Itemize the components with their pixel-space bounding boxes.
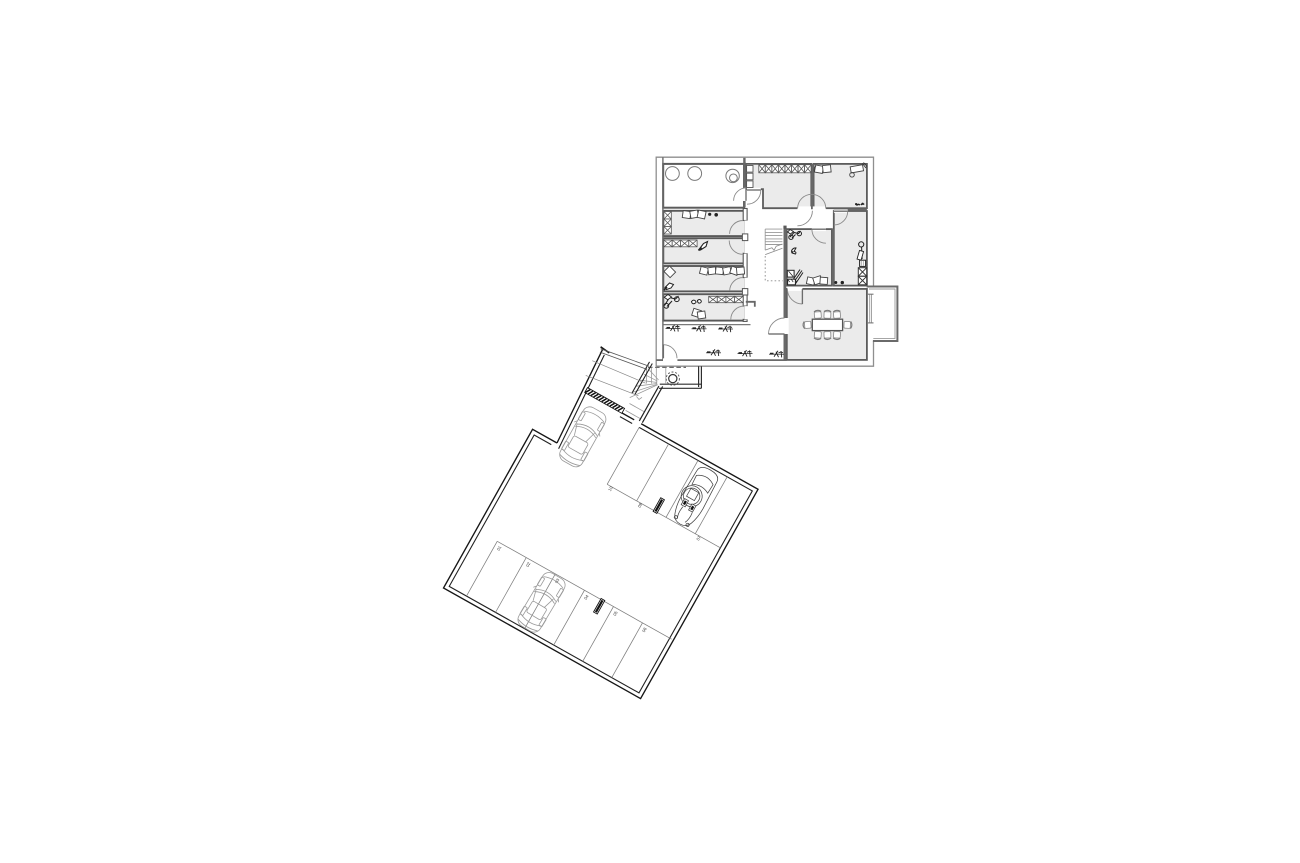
svg-text:04: 04: [583, 593, 590, 600]
svg-text:05: 05: [612, 610, 619, 617]
svg-text:06: 06: [641, 626, 648, 633]
svg-text:01: 01: [496, 544, 503, 551]
svg-text:02: 02: [525, 561, 532, 568]
